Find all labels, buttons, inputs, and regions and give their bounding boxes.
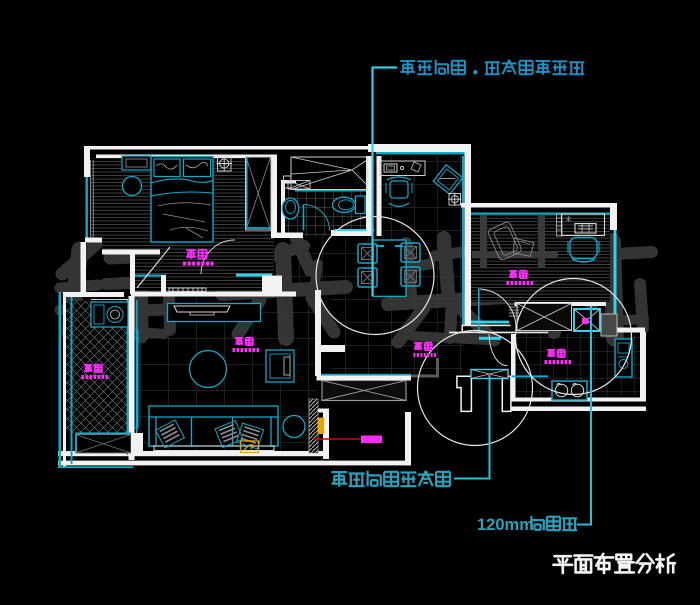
svg-text:120mm: 120mm	[477, 516, 534, 534]
